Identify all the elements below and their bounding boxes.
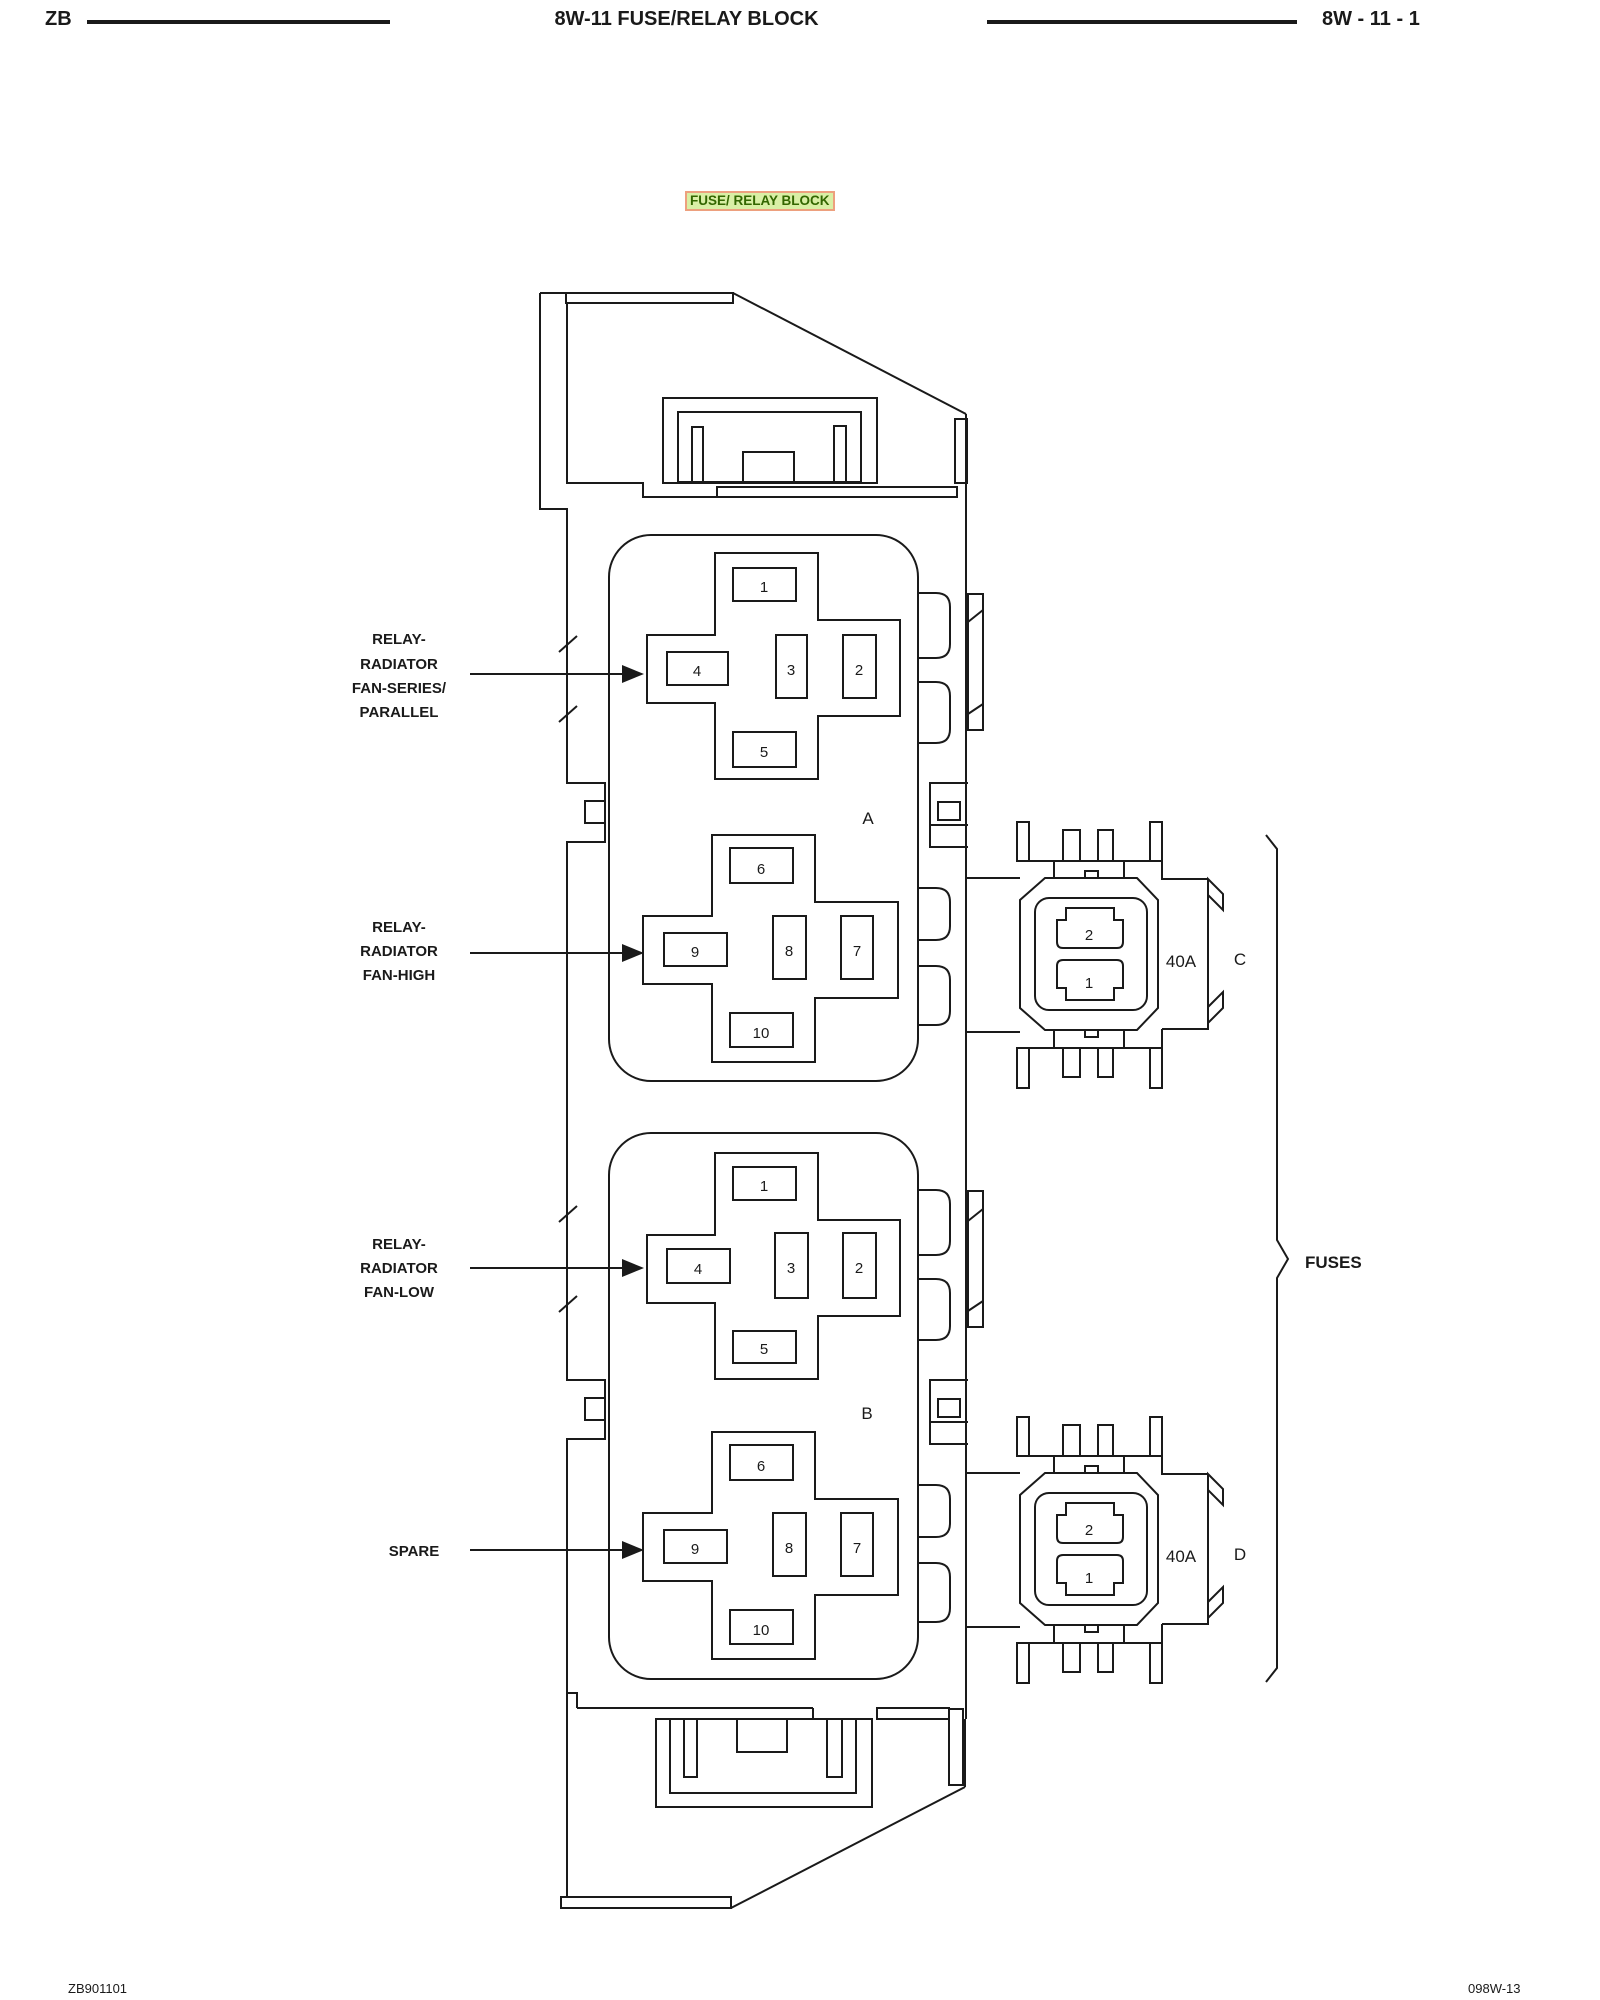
tab [1017, 1417, 1029, 1456]
cavity-number: 4 [693, 663, 701, 680]
cavity-number: 9 [691, 944, 699, 961]
key-bump [1085, 1466, 1098, 1473]
tab [1017, 1643, 1029, 1683]
tab [1098, 1425, 1113, 1456]
top-diagonal [733, 293, 966, 414]
tab [1150, 1643, 1162, 1683]
side-bump [918, 1190, 950, 1255]
bottom-connector-assembly [561, 1708, 965, 1908]
callout-line: RELAY- [372, 631, 426, 648]
right-narrow-rib [949, 1709, 963, 1785]
tab [1098, 1643, 1113, 1672]
cavity-number: 10 [753, 1025, 770, 1042]
arrowhead-icon [622, 944, 644, 962]
cavity-number: 1 [760, 579, 768, 596]
tab [1150, 822, 1162, 861]
callout-line: RADIATOR [360, 656, 438, 673]
socket-key [737, 1719, 787, 1752]
rail-break-ticks [968, 1209, 983, 1311]
cavity-number: 4 [694, 1261, 702, 1278]
cavity-number: 8 [785, 943, 793, 960]
cavity-number: 7 [853, 1540, 861, 1557]
left-mount-square [585, 801, 605, 823]
fuse-rating: 40A [1166, 952, 1197, 971]
top-connector-assembly [540, 293, 967, 509]
side-bump [918, 682, 950, 743]
cavity-number: 9 [691, 1541, 699, 1558]
corner-flap [1208, 1587, 1223, 1618]
cavity-number: 5 [760, 1341, 768, 1358]
terminal-number: 2 [1085, 1522, 1093, 1539]
fuse-cavity-frame [1035, 898, 1147, 1010]
connector-letter: B [861, 1404, 872, 1423]
bottom-edge-bar [561, 1897, 731, 1908]
tab [1063, 1048, 1080, 1077]
terminal-number: 1 [1085, 975, 1093, 992]
cavity-number: 5 [760, 744, 768, 761]
arrowhead-icon [622, 665, 644, 683]
cavity-number: 8 [785, 1540, 793, 1557]
corner-flap [1208, 879, 1223, 910]
tab [1017, 822, 1029, 861]
right-mount-square [938, 1399, 960, 1417]
key-bump [1085, 1625, 1098, 1632]
side-bump [918, 1485, 950, 1537]
cavity-number: 2 [855, 1260, 863, 1277]
socket-rib-right [827, 1719, 842, 1777]
top-right-bar [877, 1708, 949, 1719]
callout-line: SPARE [389, 1543, 440, 1560]
right-mount-bracket [930, 783, 968, 847]
corner-flap [1208, 992, 1223, 1023]
footer-figure-code: 098W-13 [1468, 1981, 1521, 1996]
callout-line: FAN-LOW [364, 1284, 435, 1301]
arrowhead-icon [622, 1259, 644, 1277]
socket-rib-left [684, 1719, 697, 1777]
fuse-arm-lines [966, 1473, 1020, 1627]
collar-lines [1054, 861, 1124, 1048]
fuses-label: FUSES [1305, 1253, 1362, 1272]
footer-doc-code: ZB901101 [68, 1981, 127, 1996]
rail-break-ticks [968, 610, 983, 714]
cavity-number: 1 [760, 1178, 768, 1195]
connector-socket-outer [663, 398, 877, 483]
outer-left-wall [540, 293, 568, 509]
cavity-number: 7 [853, 943, 861, 960]
tab [1017, 1048, 1029, 1088]
fuse-relay-block-diagram: 1 4 3 2 5 6 9 8 7 10 A [0, 0, 1600, 2000]
manual-page: ZB 8W-11 FUSE/RELAY BLOCK 8W - 11 - 1 FU… [0, 0, 1600, 2000]
callout-line: FAN-SERIES/ [352, 680, 447, 697]
right-mount-square [938, 802, 960, 820]
terminal-number: 2 [1085, 927, 1093, 944]
fuse-letter: C [1234, 950, 1246, 969]
cavity-number: 3 [787, 1260, 795, 1277]
callout-line: RELAY- [372, 1236, 426, 1253]
collar-lines [1054, 1456, 1124, 1643]
side-bump [918, 593, 950, 658]
cavity-number: 6 [757, 861, 765, 878]
fuses-brace: FUSES [1266, 835, 1362, 1682]
side-bump [918, 1563, 950, 1622]
tab [1063, 830, 1080, 861]
cavity-number: 6 [757, 1458, 765, 1475]
socket-rib-right [834, 426, 846, 482]
fuse-rating: 40A [1166, 1547, 1197, 1566]
relay-connector-A: 1 4 3 2 5 6 9 8 7 10 A [609, 535, 950, 1081]
cavity-number: 3 [787, 662, 795, 679]
block-body [559, 414, 983, 1897]
key-bump [1085, 871, 1098, 878]
side-bump [918, 1279, 950, 1340]
right-mount-bracket [930, 1380, 968, 1444]
connector-letter: A [862, 809, 874, 828]
key-bump [1085, 1030, 1098, 1037]
connector-A-outline [609, 535, 918, 1081]
socket-rib-left [692, 427, 703, 483]
curly-brace [1266, 835, 1288, 1682]
tab [1150, 1417, 1162, 1456]
fuse-assembly-C: 2 1 40A C [966, 822, 1246, 1088]
tab [1098, 1048, 1113, 1077]
tab [1063, 1643, 1080, 1672]
cavity-number: 10 [753, 1622, 770, 1639]
terminal-number: 1 [1085, 1570, 1093, 1587]
arrowhead-icon [622, 1541, 644, 1559]
body-bottom-edge [577, 1708, 813, 1719]
callout-line: RELAY- [372, 919, 426, 936]
tab [1063, 1425, 1080, 1456]
bottom-lip-bar [717, 487, 957, 497]
tab [1150, 1048, 1162, 1088]
tab [1098, 830, 1113, 861]
relay-connector-B: 1 4 3 2 5 6 9 8 7 10 B [609, 1133, 950, 1679]
top-edge-bar [566, 293, 733, 303]
bottom-left-step [566, 483, 717, 497]
fuse-cavity-frame [1035, 1493, 1147, 1605]
side-bump [918, 888, 950, 940]
bottom-left-step [567, 1693, 577, 1708]
body-left-wall [567, 509, 605, 1897]
socket-key [743, 452, 794, 483]
fuse-assembly-D: 2 1 40A D [966, 1417, 1246, 1683]
callout-line: RADIATOR [360, 1260, 438, 1277]
fuse-arm-lines [966, 878, 1020, 1032]
corner-flap [1208, 1474, 1223, 1505]
left-mount-square [585, 1398, 605, 1420]
callout-line: PARALLEL [360, 704, 439, 721]
bottom-diagonal [731, 1787, 965, 1908]
cavity-number: 2 [855, 662, 863, 679]
callout-line: RADIATOR [360, 943, 438, 960]
side-bump [918, 966, 950, 1025]
fuse-letter: D [1234, 1545, 1246, 1564]
callout-line: FAN-HIGH [363, 967, 436, 984]
